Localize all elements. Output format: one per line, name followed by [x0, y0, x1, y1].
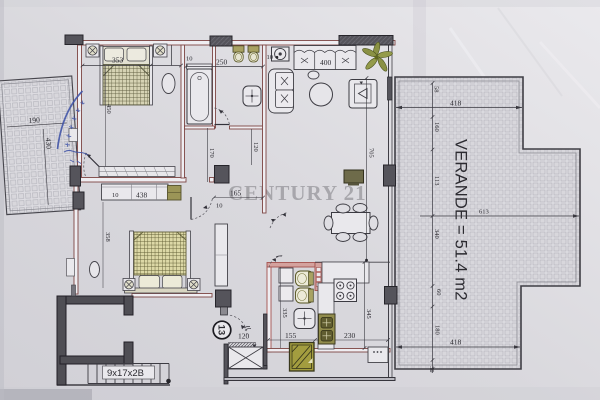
- svg-text:VERANDE = 51.4 m2: VERANDE = 51.4 m2: [452, 139, 470, 301]
- svg-text:230: 230: [344, 331, 356, 340]
- svg-text:190: 190: [28, 115, 40, 125]
- svg-text:705: 705: [368, 148, 375, 158]
- svg-text:400: 400: [320, 58, 332, 67]
- svg-text:13: 13: [215, 325, 226, 336]
- svg-text:120: 120: [252, 142, 259, 152]
- svg-text:165: 165: [230, 189, 242, 198]
- svg-text:9x17x2B: 9x17x2B: [107, 368, 144, 379]
- svg-text:613: 613: [479, 209, 489, 216]
- svg-text:113: 113: [433, 176, 440, 186]
- svg-text:450: 450: [105, 104, 112, 114]
- svg-text:120: 120: [238, 332, 250, 341]
- svg-text:10: 10: [112, 192, 119, 199]
- svg-text:160: 160: [433, 122, 440, 132]
- svg-text:170: 170: [208, 148, 215, 158]
- svg-text:10: 10: [216, 203, 223, 210]
- svg-text:335: 335: [281, 308, 288, 318]
- svg-text:58: 58: [433, 86, 440, 93]
- svg-text:155: 155: [285, 331, 297, 340]
- svg-text:438: 438: [136, 191, 148, 200]
- svg-text:418: 418: [450, 338, 462, 347]
- svg-text:250: 250: [216, 58, 228, 67]
- svg-text:340: 340: [433, 229, 440, 239]
- svg-text:CENTURY 21: CENTURY 21: [228, 181, 367, 205]
- svg-text:180: 180: [434, 325, 441, 335]
- svg-text:60: 60: [435, 289, 442, 296]
- svg-text:345: 345: [365, 309, 372, 319]
- svg-text:353: 353: [112, 56, 124, 65]
- svg-text:430: 430: [44, 137, 54, 149]
- svg-text:358: 358: [104, 232, 111, 242]
- svg-text:418: 418: [450, 99, 462, 108]
- svg-text:10: 10: [186, 56, 193, 63]
- svg-text:10: 10: [267, 54, 274, 61]
- svg-text:35: 35: [428, 366, 435, 373]
